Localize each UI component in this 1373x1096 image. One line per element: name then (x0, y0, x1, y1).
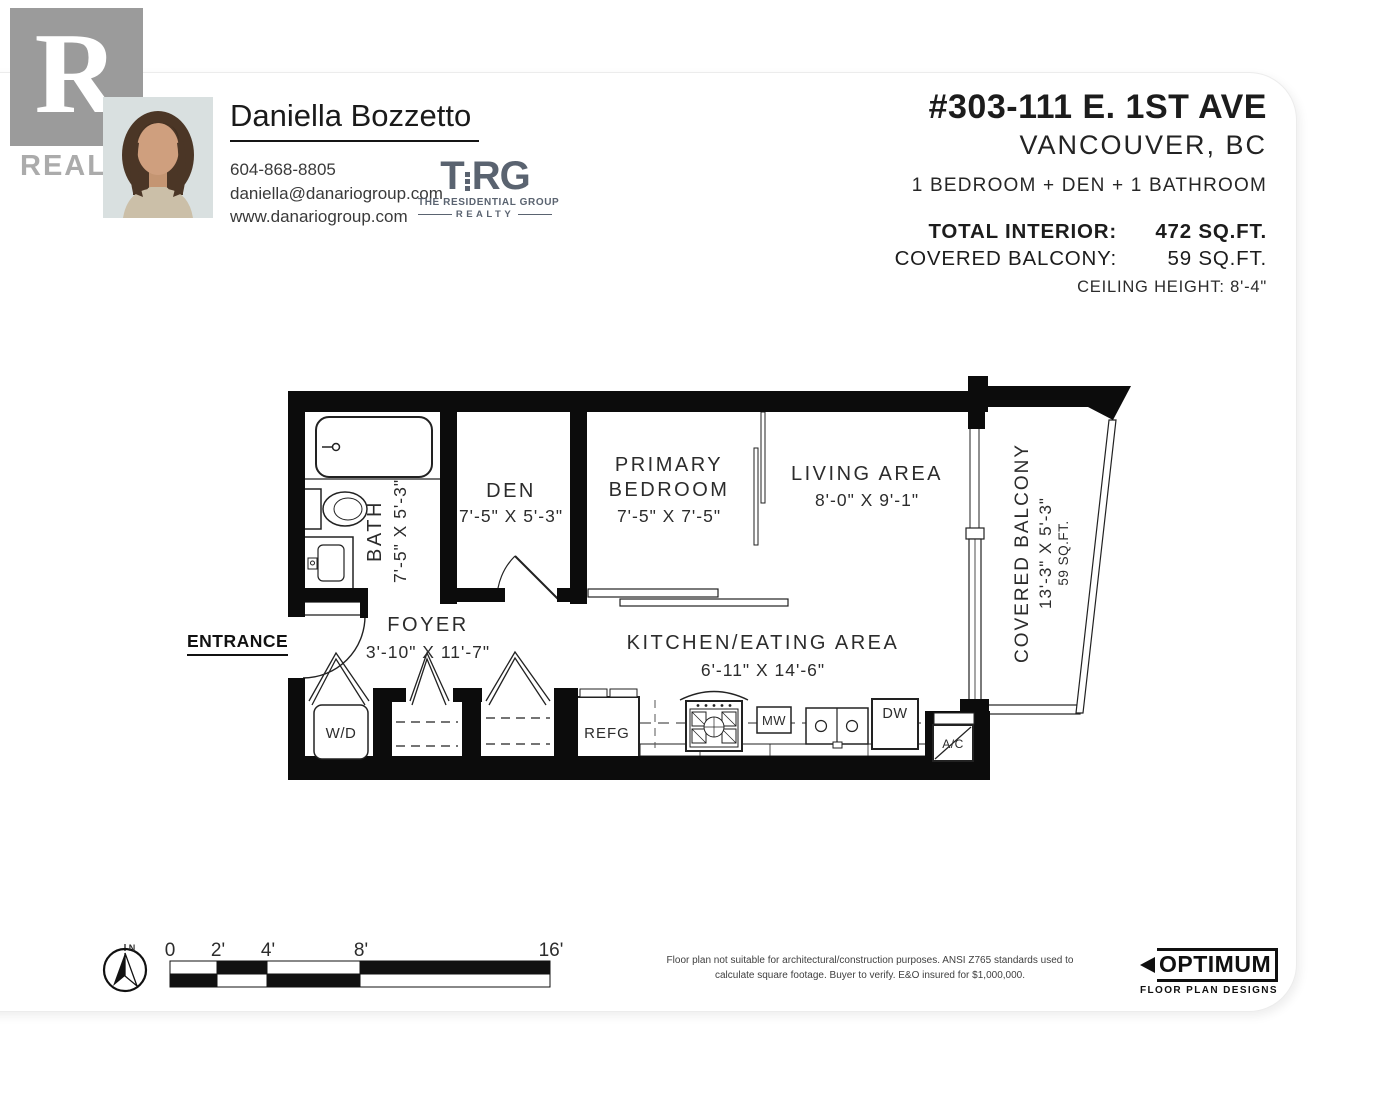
kitchen-name: KITCHEN/EATING AREA (627, 632, 900, 654)
bath-dims: 7'-5" X 5'-3" (390, 479, 410, 583)
scale-tick-16: 16' (539, 940, 564, 961)
den-dims: 7'-5" X 5'-3" (459, 506, 563, 526)
page: R REALTOR Daniella Bozzetto 604-868-8805… (0, 0, 1373, 1096)
mw-label: MW (762, 713, 786, 728)
agent-photo (103, 97, 213, 218)
balcony-area: 59 SQ.FT. (1056, 520, 1071, 585)
scale-tick-4: 4' (261, 940, 275, 961)
dw-label: DW (882, 706, 907, 722)
den-name: DEN (486, 480, 536, 502)
scale-bar: 0 2' 4' 8' 16' (165, 940, 564, 987)
compass-north: N (129, 943, 136, 953)
scale-tick-0: 0 (165, 940, 176, 961)
optimum-logo: OPTIMUM FLOOR PLAN DESIGNS (1140, 948, 1278, 996)
kitchen-dims: 6'-11" X 14'-6" (701, 660, 825, 680)
washer-dryer: W/D (314, 705, 368, 759)
ac-label: A/C (942, 737, 964, 751)
entrance-label: ENTRANCE (187, 631, 288, 652)
bath-name: BATH (364, 500, 386, 562)
compass-icon: N (104, 943, 146, 991)
optimum-subtitle: FLOOR PLAN DESIGNS (1140, 985, 1278, 996)
living-dims: 8'-0" X 9'-1" (815, 490, 919, 510)
primary-name2: BEDROOM (609, 479, 730, 501)
primary-dims: 7'-5" X 7'-5" (617, 506, 721, 526)
balcony-dims: 13'-3" X 5'-3" (1036, 497, 1055, 609)
ac-unit: A/C (933, 713, 974, 761)
disclaimer-line2: calculate square footage. Buyer to verif… (620, 968, 1120, 983)
wd-label: W/D (326, 725, 357, 742)
primary-name1: PRIMARY (615, 454, 723, 476)
foyer-dims: 3'-10" X 11'-7" (366, 642, 490, 662)
pencil-icon (1140, 957, 1155, 973)
optimum-name: OPTIMUM (1157, 948, 1278, 982)
agent-name-text: Daniella Bozzetto (230, 98, 479, 142)
foyer-name: FOYER (387, 614, 468, 636)
disclaimer-line1: Floor plan not suitable for architectura… (620, 953, 1120, 968)
scale-tick-2: 2' (211, 940, 225, 961)
scale-tick-8: 8' (354, 940, 368, 961)
agent-portrait-icon (103, 97, 213, 218)
disclaimer: Floor plan not suitable for architectura… (620, 953, 1120, 983)
agent-name: Daniella Bozzetto (230, 98, 479, 142)
kitchen-appliances (577, 689, 932, 761)
balcony-name: COVERED BALCONY (1012, 443, 1033, 663)
refg-label: REFG (584, 725, 630, 742)
living-name: LIVING AREA (791, 463, 943, 485)
